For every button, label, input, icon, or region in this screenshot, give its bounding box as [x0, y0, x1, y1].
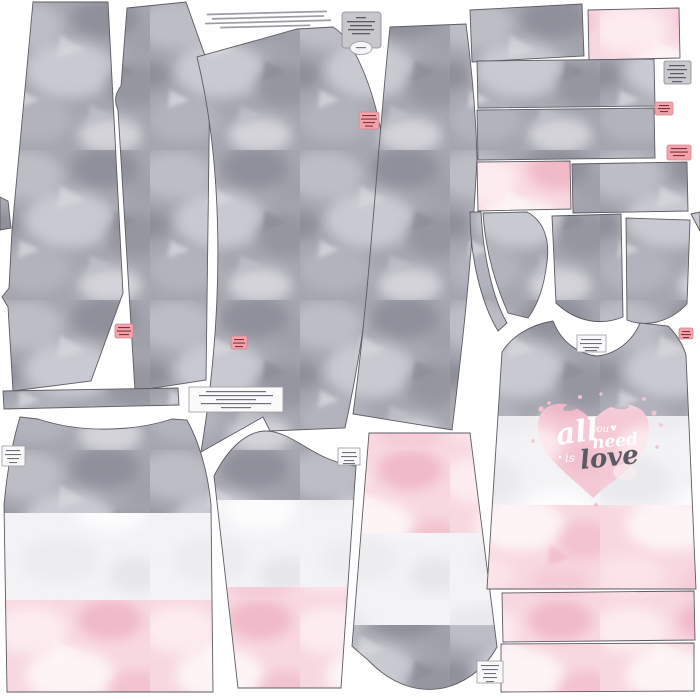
rect-gray-4 — [572, 162, 688, 213]
heart-word-love: love — [579, 440, 641, 476]
pink-piece-tag-5 — [231, 336, 247, 349]
heart-word-is: is — [565, 451, 575, 465]
pant-leg-1 — [2, 2, 123, 391]
rect-pink-1 — [588, 8, 680, 60]
white-piece-tag-1 — [189, 387, 283, 412]
white-piece-tag-5 — [477, 661, 503, 683]
rect-gray-3 — [477, 108, 655, 160]
fabric-panel-preview: all you ♥ need is love — [0, 0, 700, 700]
rect-pink-2 — [477, 161, 571, 211]
pink-strip-1 — [502, 591, 695, 642]
rect-gray-2 — [477, 59, 655, 108]
pink-piece-tag-4 — [115, 324, 133, 338]
rect-gray-1 — [470, 4, 584, 62]
tank-front-panel: all you ♥ need is love — [480, 310, 700, 593]
white-piece-tag-4 — [577, 335, 606, 352]
right-edge-cut-piece — [691, 212, 700, 231]
tank-back-panel — [0, 410, 220, 694]
cap-sleeve-left — [552, 214, 623, 322]
sleeve-panel-inverted — [345, 430, 505, 700]
neckband-strip — [3, 388, 179, 409]
white-piece-tag-3 — [338, 448, 360, 465]
dot-ornament — [559, 456, 562, 459]
pink-piece-tag-2 — [667, 145, 691, 160]
pink-strip-2 — [501, 643, 694, 692]
pink-piece-tag-1 — [655, 102, 673, 115]
white-piece-tag-2 — [2, 446, 25, 466]
left-edge-cut-sliver — [0, 197, 11, 230]
pink-piece-tag-6 — [679, 328, 693, 339]
pattern-panel-svg: all you ♥ need is love — [0, 0, 700, 700]
fine-print-text — [205, 10, 331, 28]
pink-piece-tag-3 — [359, 112, 379, 129]
gray-info-tag-1 — [342, 12, 381, 55]
cap-sleeve-right — [626, 218, 690, 323]
gray-info-tag-2 — [664, 61, 691, 84]
